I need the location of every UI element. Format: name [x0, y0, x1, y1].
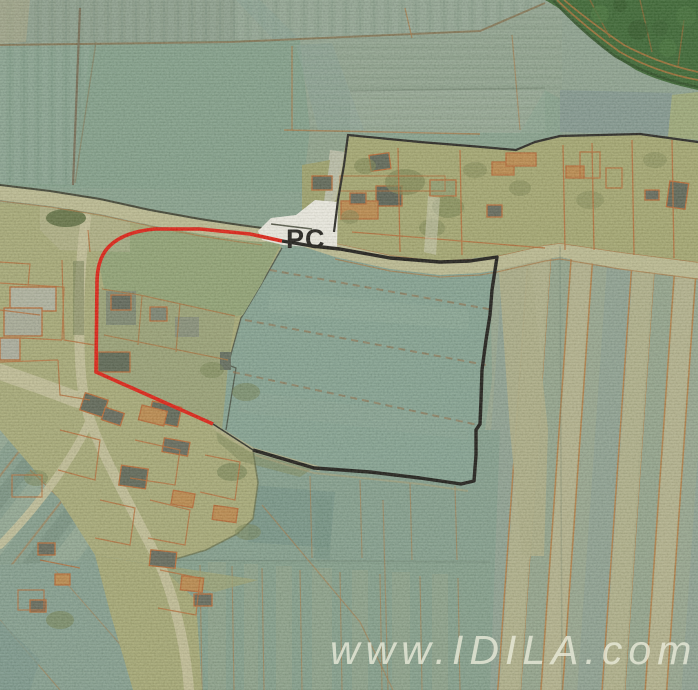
svg-text:www.IDILA.com: www.IDILA.com [330, 627, 697, 673]
